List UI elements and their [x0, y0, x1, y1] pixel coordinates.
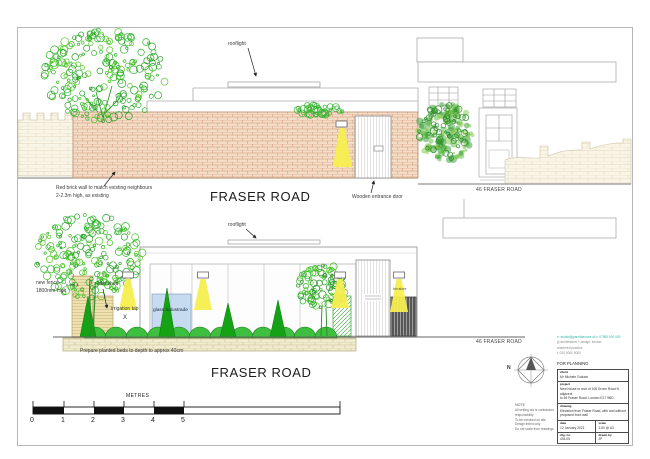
- fraser-road-label-lower: FRASER ROAD: [211, 364, 312, 383]
- drawn-by-value: JP: [598, 437, 626, 442]
- drawing-row: drawing Elevation from Fraser Road, with…: [558, 404, 628, 421]
- north-compass: [514, 354, 548, 387]
- neighbour-bush: [415, 102, 474, 163]
- neighbour-fascia: [418, 62, 616, 82]
- bin-store-label: bin store: [393, 287, 406, 292]
- scale-tick-2: 2: [91, 417, 95, 424]
- date-cell: date 12 January 2021: [558, 421, 595, 433]
- scale-tick-0: 0: [30, 417, 34, 424]
- fence-note-1: new fence: [36, 280, 59, 287]
- client-value: Mr Michele Godwin: [560, 375, 626, 380]
- existing-wall: [18, 113, 76, 176]
- wooden-entrance-door: [355, 116, 391, 178]
- drg-no-value: 404.05: [560, 437, 593, 442]
- drg-no-cell: drg. no. 404.05: [558, 433, 595, 444]
- scale-bar-title: METRES: [126, 393, 149, 400]
- fence-note-2: 1800mm high: [36, 288, 66, 295]
- brick-wall-note-1: Red brick wall to match existing neighbo…: [56, 185, 152, 192]
- irrigation-tap-mark: X: [123, 314, 127, 323]
- brick-wall-note-2: 2-2.3m high, as existing: [56, 193, 109, 200]
- house-roofline: [147, 88, 418, 113]
- project-value: to 46 Fraser Road, London E17 9BD: [560, 396, 626, 401]
- drawing-value: proposed front wall: [560, 413, 626, 418]
- neighbour-garden-wall: [505, 139, 631, 184]
- tree-large-top: [41, 28, 168, 123]
- title-block-grid: date 12 January 2021 scale 1:50 @ A3 drg…: [558, 421, 628, 443]
- title-block: e: studio@jparchitecture.uk t: 07950 000…: [557, 335, 629, 444]
- top-elevation: [18, 28, 631, 193]
- rooflight-label-lower: rooflight: [228, 222, 246, 229]
- lower-elevation: [35, 199, 616, 351]
- rooflight-lower: [228, 240, 320, 244]
- drawing-sheet: rooflight Red brick wall to match existi…: [0, 0, 650, 459]
- scale-tick-1: 1: [61, 417, 65, 424]
- elevation-drawing: [0, 0, 650, 459]
- scale-bar: [33, 401, 340, 414]
- title-block-table: client Mr Michele Godwin project New hou…: [557, 369, 629, 444]
- architect-contact-line: t: 020 0000 0000: [557, 351, 629, 356]
- scale-value: 1:50 @ A3: [598, 426, 626, 431]
- rooflight-label-top: rooflight: [228, 41, 246, 48]
- scale-tick-3: 3: [121, 417, 125, 424]
- fraser-road-label-top: FRASER ROAD: [210, 188, 311, 207]
- planted-bed-note: Prepare planted beds to depth to approx …: [80, 348, 183, 355]
- rooflight-top: [228, 82, 320, 87]
- wooden-door-label: Wooden entrance door: [352, 194, 403, 201]
- scale-cell: scale 1:50 @ A3: [595, 421, 628, 433]
- glass-balustrade-label: glass balustrade: [153, 308, 188, 315]
- irrigation-tap-label: irrigation tap: [111, 306, 139, 313]
- bike-shed-label: bike shed: [97, 281, 118, 288]
- project-row: project New house to rear of 108 Grove R…: [558, 382, 628, 404]
- drawn-by-cell: drawn by JP: [595, 433, 628, 444]
- wall-light-fixture: [336, 121, 347, 127]
- neighbour-fascia-lower: [443, 218, 616, 238]
- neighbour-label-top: 46 FRASER ROAD: [476, 187, 522, 194]
- scale-tick-4: 4: [151, 417, 155, 424]
- neighbour-label-lower: 46 FRASER ROAD: [476, 339, 522, 346]
- project-value: New house to rear of 108 Grove Road N ad…: [560, 387, 626, 396]
- north-label: N: [507, 365, 511, 372]
- client-row: client Mr Michele Godwin: [558, 370, 628, 383]
- planning-status: FOR PLANNING: [557, 361, 629, 366]
- date-value: 12 January 2021: [560, 426, 593, 431]
- scale-tick-5: 5: [181, 417, 185, 424]
